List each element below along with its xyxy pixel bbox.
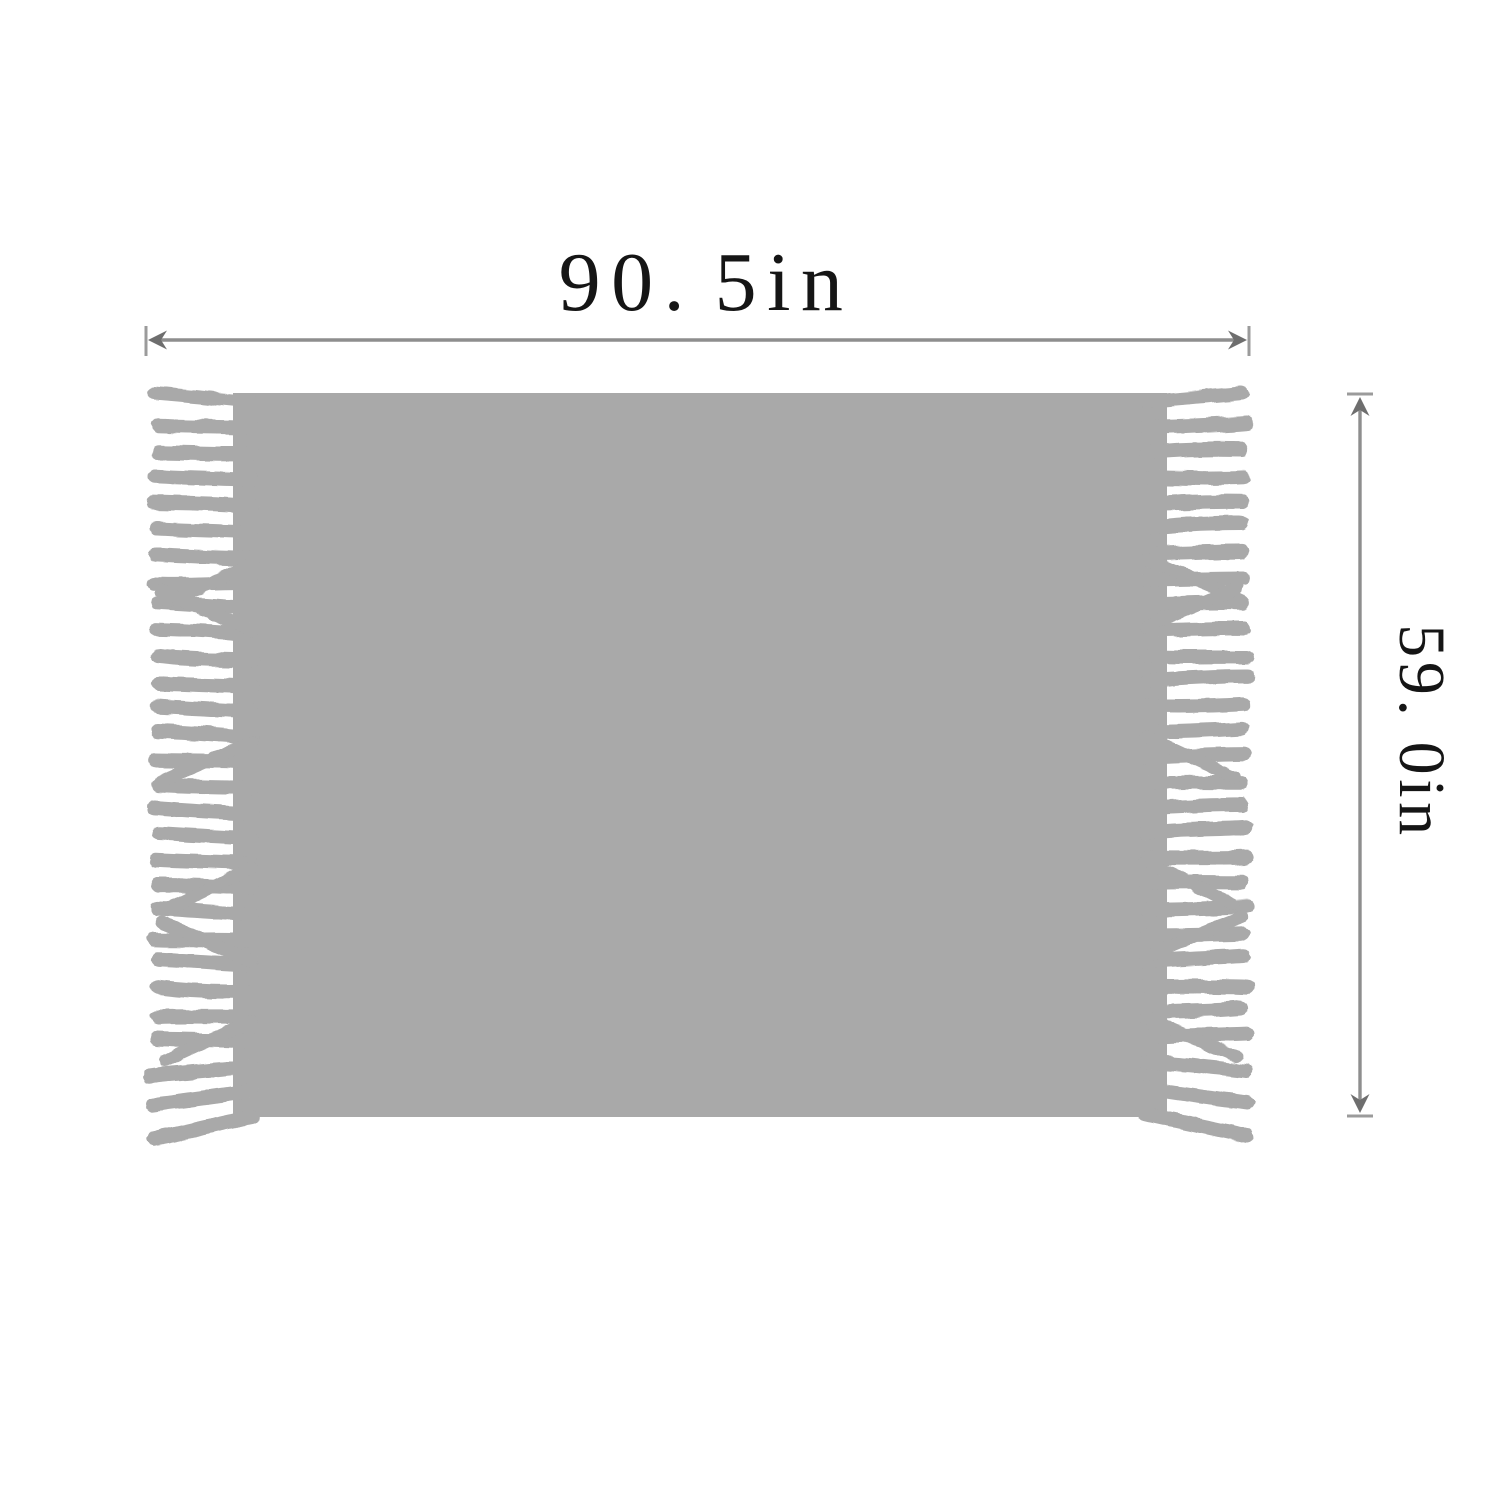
svg-text:90. 5in: 90. 5in (559, 236, 854, 329)
svg-text:59. 0in: 59. 0in (1385, 624, 1458, 840)
